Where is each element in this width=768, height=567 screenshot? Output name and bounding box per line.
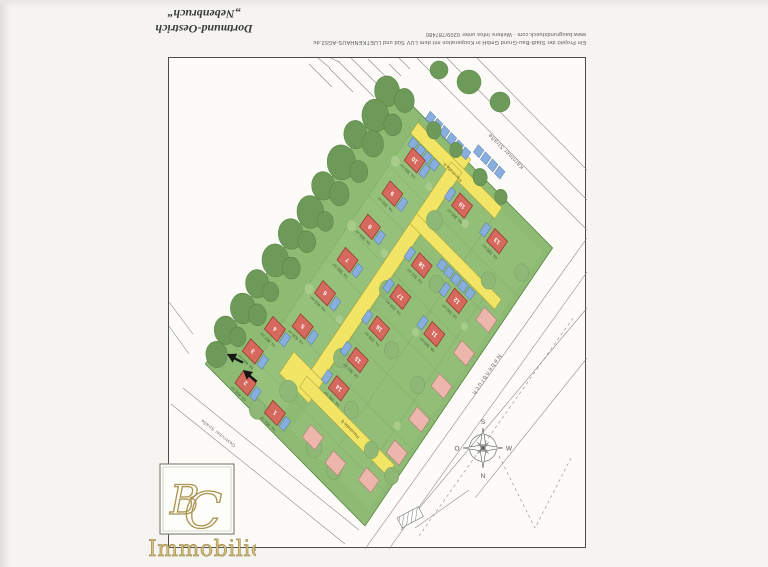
- logo-monogram-c: C: [184, 482, 222, 540]
- compass-rose-icon: S N O W: [454, 419, 512, 480]
- development-site: Planstraße A Planstraße B 10ca. 350 m²9c…: [191, 58, 565, 531]
- scan-shadow-top: [0, 0, 768, 8]
- scan-shadow-left: [0, 0, 10, 567]
- project-info-line1: Ein Projekt der Stadt-Bau-Grund GmbH in …: [300, 38, 586, 46]
- project-info: Ein Projekt der Stadt-Bau-Grund GmbH in …: [300, 30, 586, 46]
- compass-top: S: [481, 419, 486, 426]
- logo-wordmark: Immobilien: [148, 537, 256, 562]
- project-title: Dortmund-Oestrich „Nebenbruch“: [146, 6, 262, 36]
- project-title-name: „Nebenbruch“: [146, 6, 262, 21]
- project-info-line2: www.baugrundstueck.com · Weitere Infos u…: [300, 30, 586, 38]
- compass-bottom: N: [481, 473, 486, 480]
- street-label-sw: Oestricher Straße: [200, 418, 236, 448]
- agency-logo: B C Immobilien: [146, 462, 256, 564]
- compass-right: W: [506, 446, 513, 453]
- corridor-trees: [430, 61, 510, 112]
- compass-left: O: [454, 446, 459, 453]
- project-title-location: Dortmund-Oestrich: [146, 21, 262, 36]
